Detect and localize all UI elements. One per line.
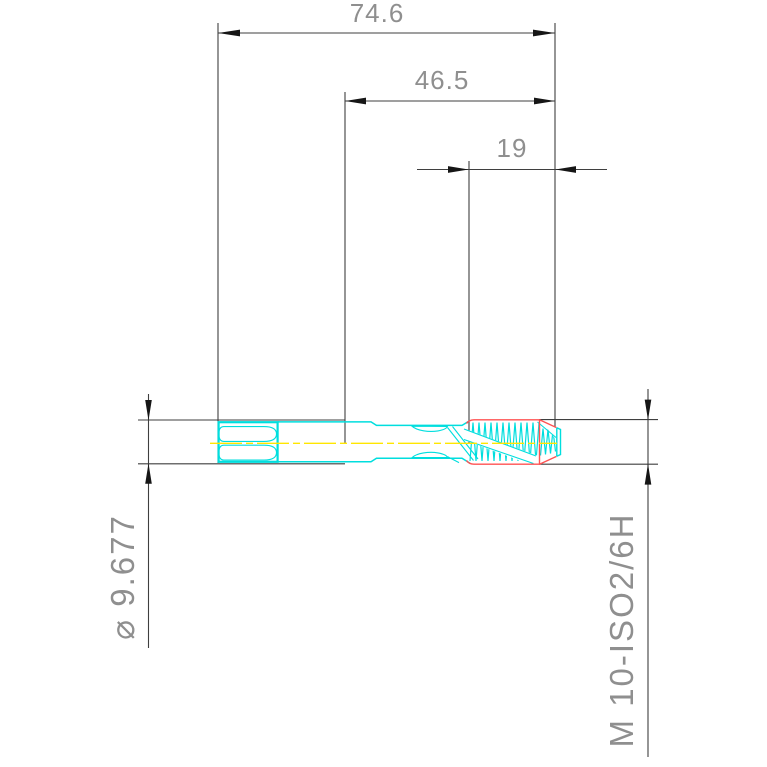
arrowhead (218, 30, 240, 37)
dimension-lines (138, 23, 658, 757)
overall-length-label: 74.6 (327, 0, 427, 26)
square-drive-flat-bottom (219, 445, 277, 460)
diameter-label: ⌀ 9.677 (104, 497, 140, 657)
arrowhead (645, 464, 652, 485)
flute-loop-bottom (412, 452, 447, 457)
tap-part (219, 421, 478, 464)
thread-length-label: 19 (482, 135, 542, 161)
length-to-neck-label: 46.5 (392, 67, 492, 93)
shank-outline (278, 421, 470, 464)
arrowhead (448, 166, 469, 173)
square-drive-outline (219, 422, 278, 462)
thread-end-face (557, 428, 561, 456)
arrowhead (145, 463, 152, 483)
arrowhead (145, 400, 152, 420)
flute-loop-top (412, 426, 447, 431)
arrowhead (533, 30, 555, 37)
drawing-canvas: 74.6 46.5 19 ⌀ 9.677 M 10-ISO2/6H (0, 0, 767, 767)
arrowhead (555, 166, 576, 173)
arrowhead (345, 98, 366, 105)
arrowheads (145, 30, 651, 485)
arrowhead (645, 400, 652, 420)
arrowhead (534, 98, 555, 105)
square-drive-flat-top (219, 427, 277, 442)
thread-designation-label: M 10-ISO2/6H (603, 498, 639, 762)
